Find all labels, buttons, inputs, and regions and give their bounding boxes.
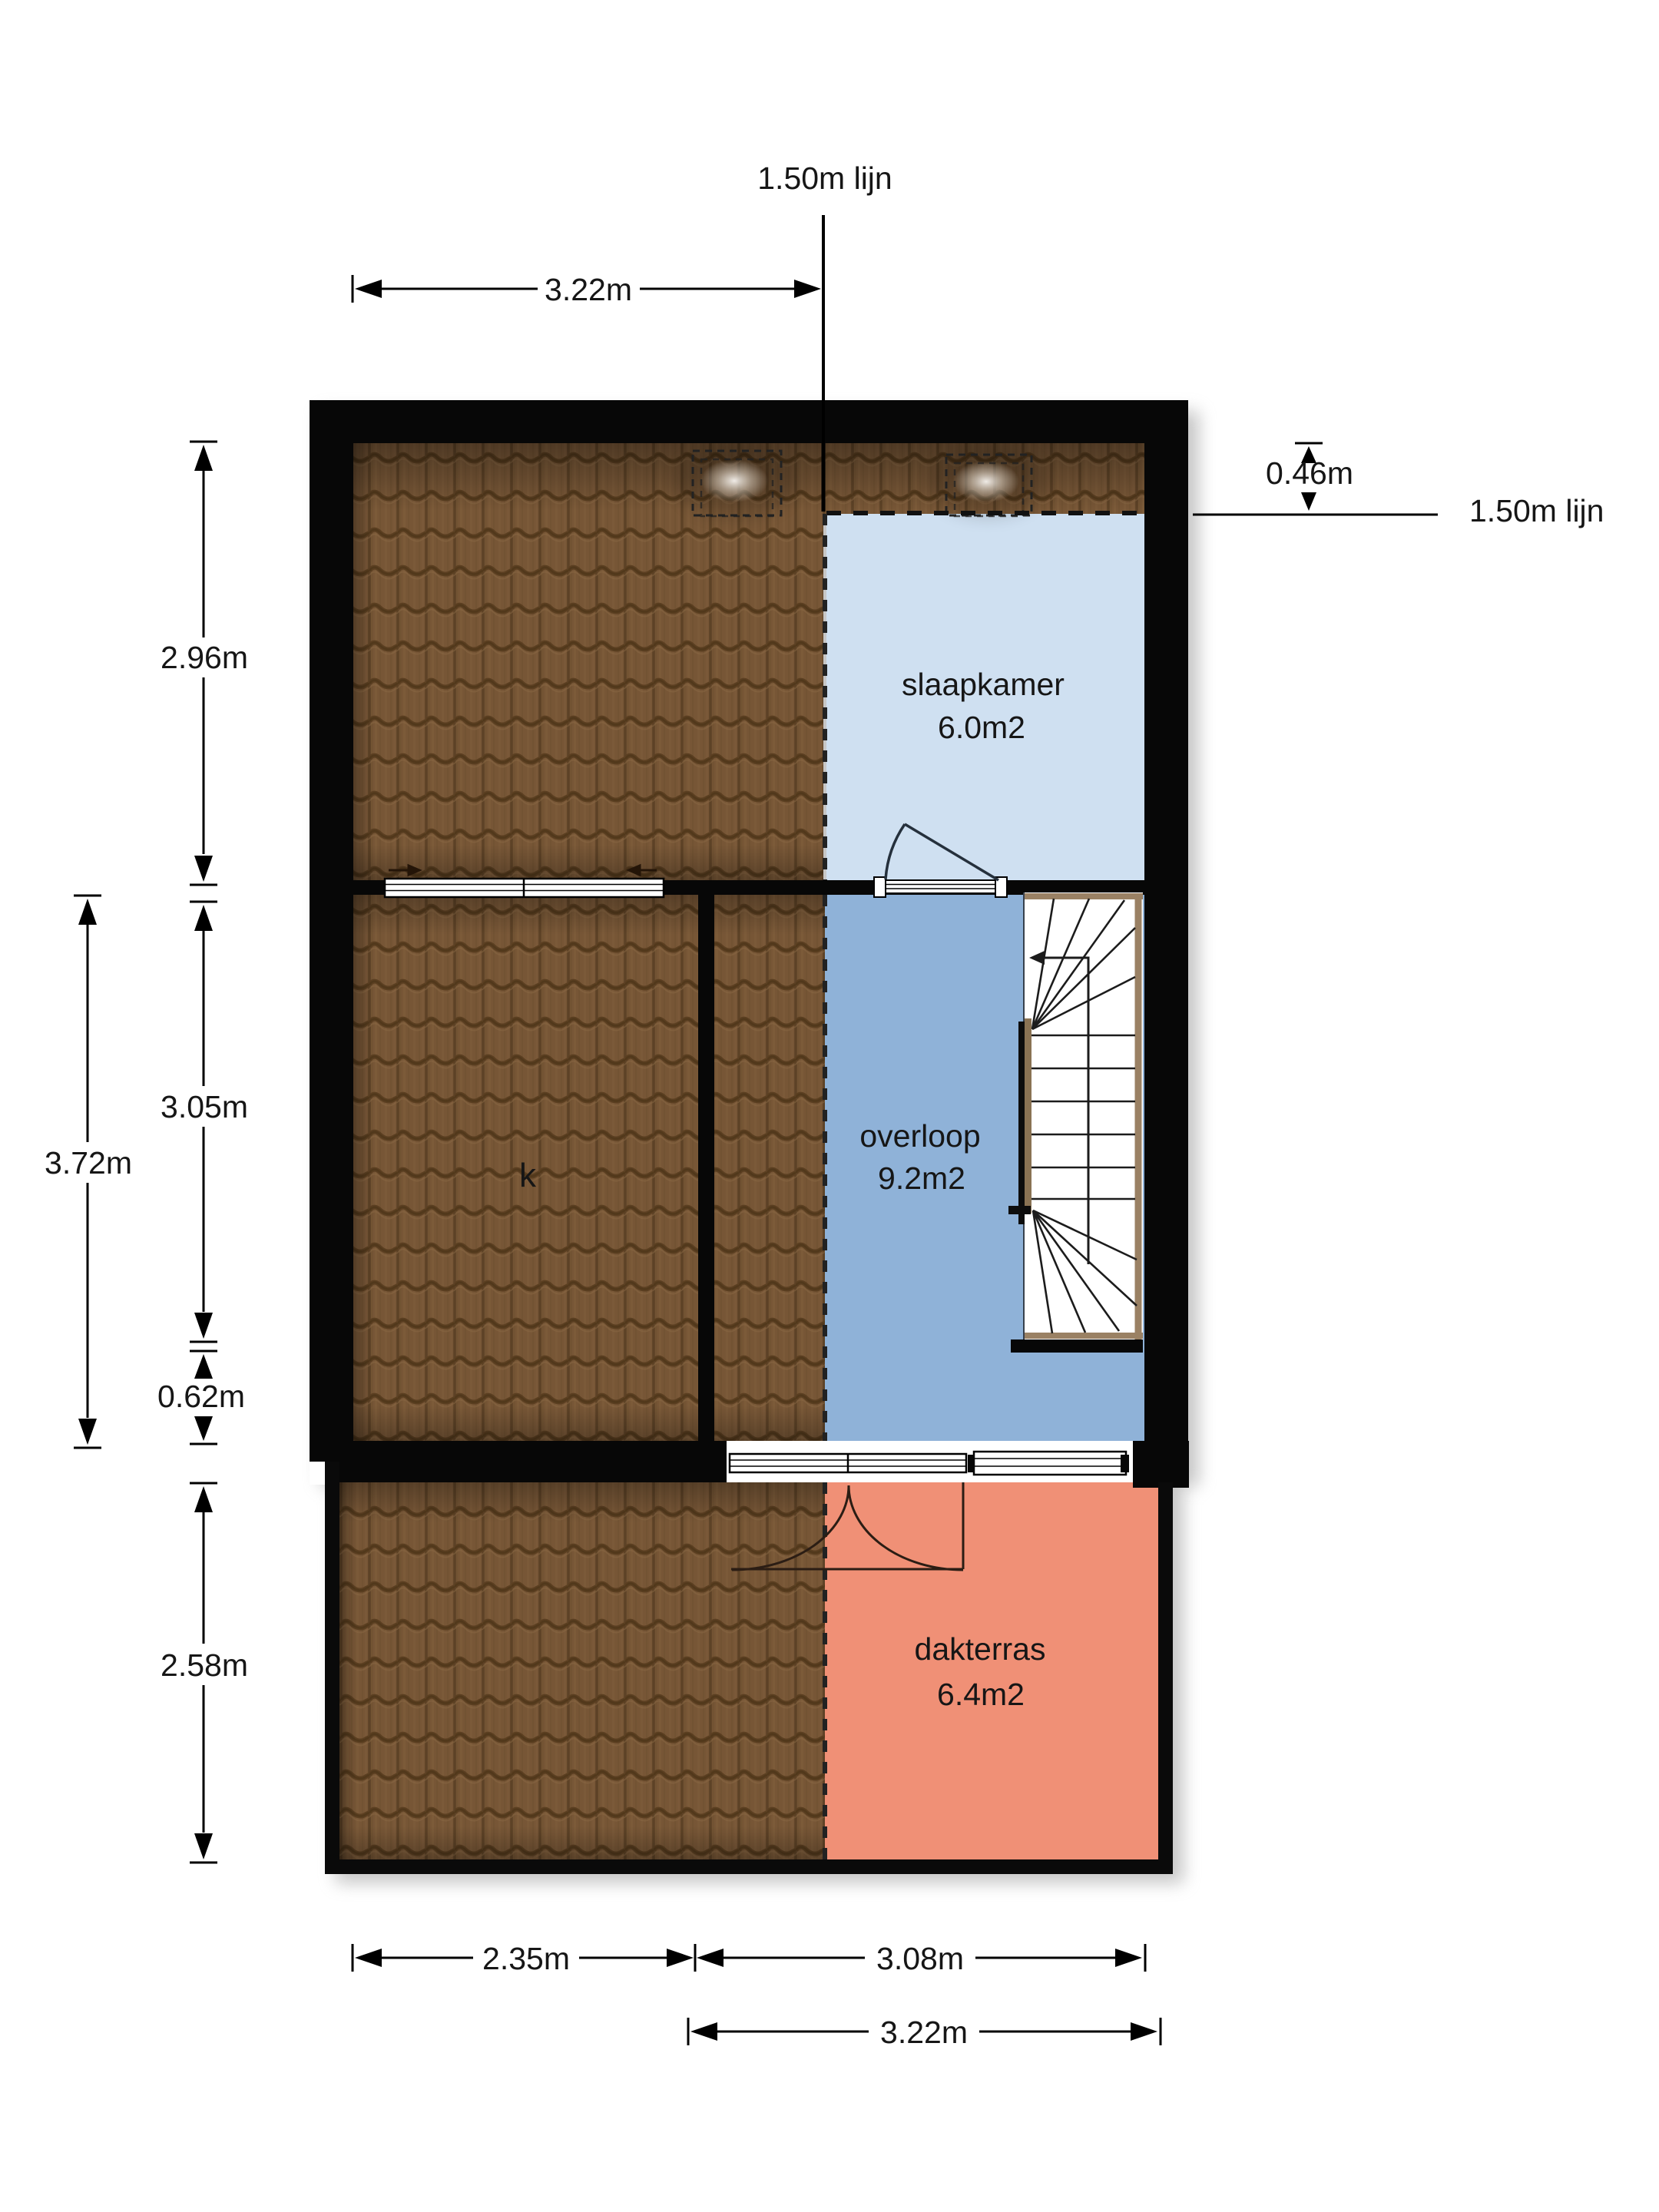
svg-text:overloop: overloop [859, 1118, 980, 1154]
svg-text:3.22m: 3.22m [880, 2015, 968, 2050]
svg-text:3.72m: 3.72m [45, 1145, 132, 1181]
svg-text:slaapkamer: slaapkamer [902, 667, 1065, 702]
svg-text:1.50m lijn: 1.50m lijn [757, 161, 892, 196]
svg-text:2.35m: 2.35m [482, 1941, 570, 1976]
svg-text:k: k [519, 1157, 537, 1194]
svg-text:6.0m2: 6.0m2 [938, 710, 1025, 745]
svg-text:dakterras: dakterras [915, 1631, 1046, 1667]
svg-text:3.08m: 3.08m [876, 1941, 964, 1976]
svg-text:2.58m: 2.58m [161, 1647, 248, 1683]
svg-text:9.2m2: 9.2m2 [878, 1161, 965, 1196]
svg-text:2.96m: 2.96m [161, 640, 248, 675]
svg-text:0.46m: 0.46m [1266, 455, 1353, 491]
svg-text:3.22m: 3.22m [545, 272, 632, 307]
svg-text:0.62m: 0.62m [157, 1379, 245, 1414]
svg-text:6.4m2: 6.4m2 [937, 1677, 1025, 1712]
svg-text:3.05m: 3.05m [161, 1089, 248, 1124]
svg-text:1.50m lijn: 1.50m lijn [1469, 493, 1604, 528]
